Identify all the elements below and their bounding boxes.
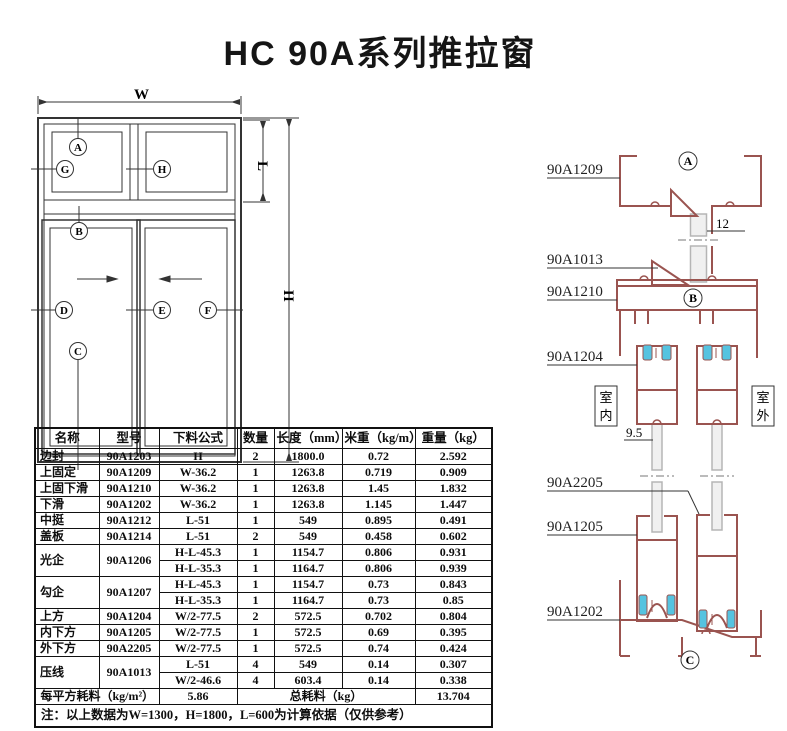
table-cell: 0.931 bbox=[415, 545, 492, 561]
table-cell: 0.424 bbox=[415, 641, 492, 657]
table-cell: 1263.8 bbox=[274, 481, 342, 497]
table-cell: 0.307 bbox=[415, 657, 492, 673]
table-cell: 0.909 bbox=[415, 465, 492, 481]
table-cell: 90A1205 bbox=[99, 625, 159, 641]
table-cell: 0.74 bbox=[342, 641, 415, 657]
table-cell: 90A1209 bbox=[99, 465, 159, 481]
table-cell: L-51 bbox=[159, 513, 237, 529]
table-cell: 90A1210 bbox=[99, 481, 159, 497]
part-label-90a1202: 90A1202 bbox=[547, 604, 603, 620]
dim-label-w: W bbox=[134, 88, 149, 103]
table-cell: 603.4 bbox=[274, 673, 342, 689]
table-cell: 长度（mm） bbox=[274, 428, 342, 449]
table-cell: W/2-77.5 bbox=[159, 625, 237, 641]
table-row: 盖板90A1214L-5125490.4580.602 bbox=[35, 529, 492, 545]
table-row: 内下方90A1205W/2-77.51572.50.690.395 bbox=[35, 625, 492, 641]
table-cell: 0.939 bbox=[415, 561, 492, 577]
table-cell: 型号 bbox=[99, 428, 159, 449]
part-label-90a2205: 90A2205 bbox=[547, 475, 603, 491]
table-cell: 2 bbox=[237, 449, 274, 465]
table-cell: 0.14 bbox=[342, 673, 415, 689]
table-cell: 外下方 bbox=[35, 641, 99, 657]
table-cell: 1263.8 bbox=[274, 465, 342, 481]
table-cell: L-51 bbox=[159, 657, 237, 673]
table-cell: 0.14 bbox=[342, 657, 415, 673]
marker-h: H bbox=[158, 164, 167, 176]
table-cell: W/2-77.5 bbox=[159, 609, 237, 625]
table-cell: 每平方耗料（kg/m²） bbox=[35, 689, 159, 705]
table-cell: 0.73 bbox=[342, 593, 415, 609]
indoor-label: 室 内 bbox=[595, 386, 617, 426]
marker-e: E bbox=[158, 305, 165, 317]
materials-table: 名称型号下料公式数量长度（mm）米重（kg/m）重量（kg）边封90A1203H… bbox=[34, 427, 493, 728]
table-cell: 1 bbox=[237, 497, 274, 513]
table-row: 压线90A1013L-5145490.140.307 bbox=[35, 657, 492, 673]
table-cell: 0.395 bbox=[415, 625, 492, 641]
table-cell: 0.895 bbox=[342, 513, 415, 529]
table-cell: 1 bbox=[237, 641, 274, 657]
table-cell: 上固下滑 bbox=[35, 481, 99, 497]
part-label-90a1210: 90A1210 bbox=[547, 284, 603, 300]
table-cell: 压线 bbox=[35, 657, 99, 689]
table-cell: 1 bbox=[237, 593, 274, 609]
table-cell: 1263.8 bbox=[274, 497, 342, 513]
table-cell: W-36.2 bbox=[159, 465, 237, 481]
table-cell: 0.602 bbox=[415, 529, 492, 545]
table-cell: 0.85 bbox=[415, 593, 492, 609]
marker-a: A bbox=[74, 142, 82, 154]
marker-f: F bbox=[205, 305, 212, 317]
glass-dim-top: 12 bbox=[716, 216, 729, 231]
svg-text:室: 室 bbox=[599, 390, 612, 405]
table-cell: 1 bbox=[237, 561, 274, 577]
table-cell: 1.447 bbox=[415, 497, 492, 513]
dim-label-h: H bbox=[280, 290, 296, 302]
table-cell: 盖板 bbox=[35, 529, 99, 545]
table-cell: 2 bbox=[237, 609, 274, 625]
table-cell: H-L-45.3 bbox=[159, 545, 237, 561]
marker-d: D bbox=[60, 305, 68, 317]
table-cell: 90A1212 bbox=[99, 513, 159, 529]
table-cell: H bbox=[159, 449, 237, 465]
table-cell: 549 bbox=[274, 513, 342, 529]
table-cell: W-36.2 bbox=[159, 481, 237, 497]
table-cell: 中挺 bbox=[35, 513, 99, 529]
table-cell: 1 bbox=[237, 513, 274, 529]
table-cell: 13.704 bbox=[415, 689, 492, 705]
table-cell: 572.5 bbox=[274, 625, 342, 641]
table-cell: 上固定 bbox=[35, 465, 99, 481]
glass-dim-bottom: 9.5 bbox=[626, 425, 642, 440]
table-row: 中挺90A1212L-5115490.8950.491 bbox=[35, 513, 492, 529]
table-row: 注：以上数据为W=1300，H=1800，L=600为计算依据（仅供参考） bbox=[35, 705, 492, 728]
table-cell: 5.86 bbox=[159, 689, 237, 705]
part-label-90a1204: 90A1204 bbox=[547, 349, 603, 365]
table-cell: 1.45 bbox=[342, 481, 415, 497]
table-cell: 0.491 bbox=[415, 513, 492, 529]
table-cell: 0.73 bbox=[342, 577, 415, 593]
marker-g: G bbox=[61, 164, 70, 176]
table-cell: H-L-35.3 bbox=[159, 561, 237, 577]
table-cell: 2 bbox=[237, 529, 274, 545]
table-cell: 1 bbox=[237, 465, 274, 481]
dim-label-l: L bbox=[254, 161, 270, 171]
table-cell: W-36.2 bbox=[159, 497, 237, 513]
table-cell: 米重（kg/m） bbox=[342, 428, 415, 449]
part-label-90a1209: 90A1209 bbox=[547, 162, 603, 178]
table-cell: 0.338 bbox=[415, 673, 492, 689]
table-cell: 数量 bbox=[237, 428, 274, 449]
marker-b: B bbox=[75, 226, 83, 238]
table-cell: 上方 bbox=[35, 609, 99, 625]
table-cell: 90A2205 bbox=[99, 641, 159, 657]
table-cell: 0.804 bbox=[415, 609, 492, 625]
part-label-90a1205: 90A1205 bbox=[547, 519, 603, 535]
table-cell: W/2-46.6 bbox=[159, 673, 237, 689]
table-cell: 90A1013 bbox=[99, 657, 159, 689]
table-cell: 0.719 bbox=[342, 465, 415, 481]
svg-text:外: 外 bbox=[756, 408, 769, 423]
table-cell: 90A1207 bbox=[99, 577, 159, 609]
table-cell: 90A1203 bbox=[99, 449, 159, 465]
profile-section-diagram: 90A1209 90A1013 90A1210 90A1204 90A2205 … bbox=[540, 128, 787, 688]
table-cell: 4 bbox=[237, 657, 274, 673]
table-cell: 1154.7 bbox=[274, 545, 342, 561]
table-cell: 下料公式 bbox=[159, 428, 237, 449]
table-cell: 勾企 bbox=[35, 577, 99, 609]
section-marker-c: C bbox=[686, 653, 695, 667]
marker-c: C bbox=[74, 346, 82, 358]
table-cell: 0.702 bbox=[342, 609, 415, 625]
table-cell: 重量（kg） bbox=[415, 428, 492, 449]
table-cell: 1.832 bbox=[415, 481, 492, 497]
table-row: 上方90A1204W/2-77.52572.50.7020.804 bbox=[35, 609, 492, 625]
table-row: 每平方耗料（kg/m²）5.86总耗料（kg）13.704 bbox=[35, 689, 492, 705]
table-row: 上固下滑90A1210W-36.211263.81.451.832 bbox=[35, 481, 492, 497]
table-cell: 1 bbox=[237, 545, 274, 561]
table-row: 外下方90A2205W/2-77.51572.50.740.424 bbox=[35, 641, 492, 657]
table-cell: 1.145 bbox=[342, 497, 415, 513]
table-row: 勾企90A1207H-L-45.311154.70.730.843 bbox=[35, 577, 492, 593]
table-cell: 1154.7 bbox=[274, 577, 342, 593]
elevation-markers: A G H B D E F C bbox=[56, 139, 217, 360]
table-row: 光企90A1206H-L-45.311154.70.8060.931 bbox=[35, 545, 492, 561]
table-cell: 光企 bbox=[35, 545, 99, 577]
table-cell: 注：以上数据为W=1300，H=1800，L=600为计算依据（仅供参考） bbox=[35, 705, 492, 728]
table-row: 下滑90A1202W-36.211263.81.1451.447 bbox=[35, 497, 492, 513]
section-marker-b: B bbox=[689, 291, 697, 305]
table-cell: 0.806 bbox=[342, 545, 415, 561]
table-row: 名称型号下料公式数量长度（mm）米重（kg/m）重量（kg） bbox=[35, 428, 492, 449]
section-marker-a: A bbox=[684, 154, 693, 168]
table-cell: 总耗料（kg） bbox=[237, 689, 415, 705]
table-cell: 0.72 bbox=[342, 449, 415, 465]
part-label-90a1013: 90A1013 bbox=[547, 252, 603, 268]
table-cell: 名称 bbox=[35, 428, 99, 449]
table-cell: 1 bbox=[237, 481, 274, 497]
table-cell: 4 bbox=[237, 673, 274, 689]
table-cell: 边封 bbox=[35, 449, 99, 465]
table-cell: 90A1214 bbox=[99, 529, 159, 545]
table-cell: 1 bbox=[237, 577, 274, 593]
table-cell: 1 bbox=[237, 625, 274, 641]
table-cell: 0.458 bbox=[342, 529, 415, 545]
spec-sheet-page: HC 90A系列推拉窗 W L H bbox=[0, 0, 787, 731]
table-cell: 90A1204 bbox=[99, 609, 159, 625]
table-row: 边封90A1203H21800.00.722.592 bbox=[35, 449, 492, 465]
table-cell: H-L-35.3 bbox=[159, 593, 237, 609]
table-cell: 1800.0 bbox=[274, 449, 342, 465]
table-cell: 1164.7 bbox=[274, 593, 342, 609]
page-title: HC 90A系列推拉窗 bbox=[0, 26, 760, 75]
table-cell: W/2-77.5 bbox=[159, 641, 237, 657]
table-cell: 2.592 bbox=[415, 449, 492, 465]
outdoor-label: 室 外 bbox=[752, 386, 774, 426]
table-cell: H-L-45.3 bbox=[159, 577, 237, 593]
table-cell: 0.806 bbox=[342, 561, 415, 577]
table-cell: 572.5 bbox=[274, 609, 342, 625]
table-cell: 1164.7 bbox=[274, 561, 342, 577]
svg-text:内: 内 bbox=[599, 408, 612, 423]
table-cell: 549 bbox=[274, 529, 342, 545]
table-cell: 549 bbox=[274, 657, 342, 673]
table-cell: 0.69 bbox=[342, 625, 415, 641]
table-cell: 内下方 bbox=[35, 625, 99, 641]
materials-table-body: 名称型号下料公式数量长度（mm）米重（kg/m）重量（kg）边封90A1203H… bbox=[35, 428, 492, 727]
table-cell: 90A1202 bbox=[99, 497, 159, 513]
svg-text:室: 室 bbox=[756, 390, 769, 405]
table-cell: 0.843 bbox=[415, 577, 492, 593]
table-cell: 90A1206 bbox=[99, 545, 159, 577]
table-row: 上固定90A1209W-36.211263.80.7190.909 bbox=[35, 465, 492, 481]
table-cell: L-51 bbox=[159, 529, 237, 545]
table-cell: 下滑 bbox=[35, 497, 99, 513]
table-cell: 572.5 bbox=[274, 641, 342, 657]
